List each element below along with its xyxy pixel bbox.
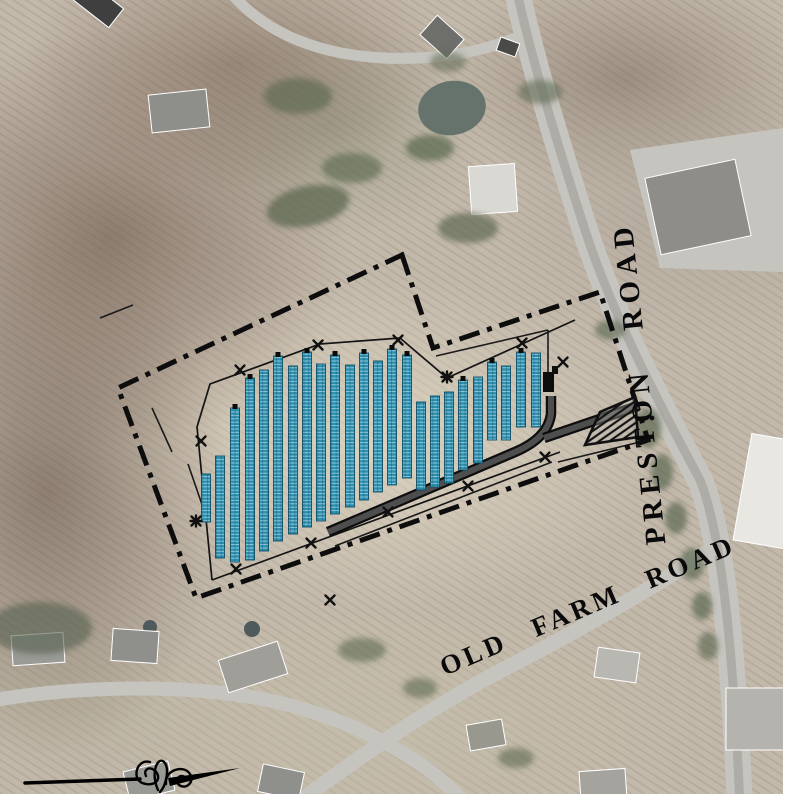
subdivision-road — [0, 688, 468, 794]
existing-feature-line — [436, 330, 548, 356]
star-marker — [191, 516, 202, 527]
solar-panel-row — [246, 378, 255, 560]
panel-end-marker — [248, 374, 253, 379]
trees-patch — [322, 153, 382, 183]
trees-patch — [403, 678, 437, 698]
solar-panel-row — [488, 362, 497, 440]
trees-patch — [438, 213, 498, 243]
solar-panel-row — [260, 370, 269, 551]
trees-patch — [406, 135, 454, 161]
house — [579, 768, 627, 794]
solar-panel-row — [231, 408, 240, 562]
solar-panel-row — [202, 474, 211, 522]
trees-patch — [498, 748, 534, 768]
solar-panel-row — [216, 456, 225, 558]
equipment-pad — [543, 372, 554, 392]
x-marker — [326, 596, 335, 605]
solar-panel-row — [417, 402, 426, 490]
existing-feature-line — [100, 305, 133, 318]
warehouse-building — [733, 433, 783, 550]
solar-panel-row — [517, 352, 526, 427]
flourish-line — [25, 779, 140, 783]
trees-patch — [338, 638, 386, 662]
existing-feature-line — [152, 408, 172, 452]
solar-panel-row — [388, 349, 397, 485]
panel-end-marker — [333, 351, 338, 356]
house — [466, 719, 506, 751]
house — [258, 764, 305, 794]
panel-end-marker — [490, 358, 495, 363]
solar-panel-row — [431, 396, 440, 487]
house — [218, 641, 287, 692]
solar-panel-row — [346, 365, 355, 507]
solar-panel-row — [360, 353, 369, 500]
panel-end-marker — [405, 351, 410, 356]
solar-panel-row — [303, 352, 312, 527]
star-marker — [442, 372, 453, 383]
pond — [414, 76, 490, 141]
trees-patch — [430, 52, 466, 72]
solar-panel-row — [289, 366, 298, 534]
house — [111, 628, 159, 663]
building — [148, 89, 210, 133]
solar-panel-row — [374, 361, 383, 492]
solar-panel-row — [532, 353, 541, 427]
solar-panel-row — [459, 380, 468, 470]
small-pond — [244, 621, 260, 637]
trees-patch — [264, 78, 332, 114]
building — [468, 163, 517, 214]
panel-end-marker — [305, 348, 310, 353]
solar-panel-row — [331, 355, 340, 514]
solar-panel-row — [502, 366, 511, 440]
panel-end-marker — [461, 376, 466, 381]
solar-panel-row — [274, 356, 283, 541]
flourish-bar — [168, 768, 240, 786]
building — [726, 688, 783, 750]
solar-panel-row — [317, 364, 326, 521]
panel-end-marker — [519, 348, 524, 353]
site-plan-map: PRESTON ROAD OLD FARM ROAD — [0, 0, 787, 801]
equipment-pad — [552, 366, 558, 374]
x-marker — [464, 482, 473, 491]
site-map-canvas — [0, 0, 783, 794]
solar-panel-row — [403, 355, 412, 478]
house — [594, 647, 640, 683]
trees-patch — [518, 80, 562, 104]
solar-panel-row — [474, 377, 483, 463]
solar-panel-row — [445, 392, 454, 483]
x-marker — [232, 565, 241, 574]
top-left-road — [232, 0, 520, 58]
tree-line — [692, 592, 712, 620]
panel-end-marker — [276, 352, 281, 357]
building — [72, 0, 123, 28]
trees-patch — [263, 178, 353, 235]
panel-end-marker — [390, 345, 395, 350]
trees-patch — [0, 602, 92, 654]
panel-end-marker — [362, 349, 367, 354]
tree-line — [698, 632, 718, 660]
x-marker — [559, 358, 568, 367]
panel-end-marker — [233, 404, 238, 409]
site-plan-overlay — [100, 255, 654, 605]
